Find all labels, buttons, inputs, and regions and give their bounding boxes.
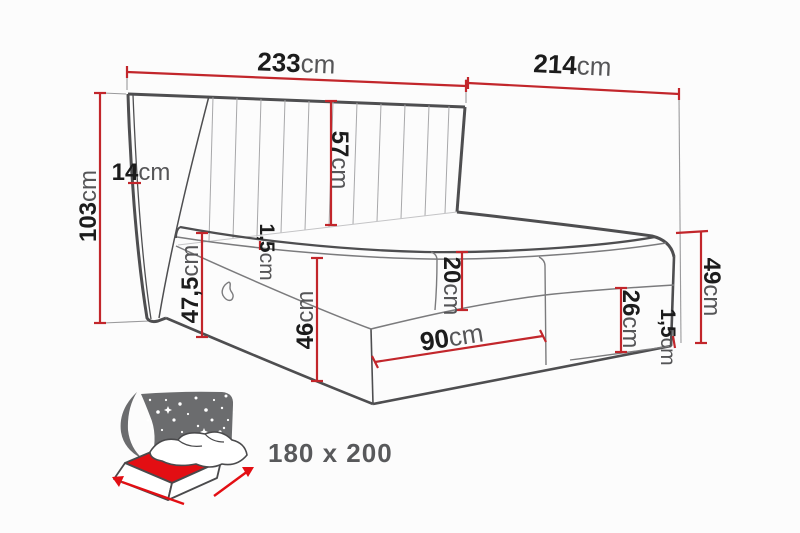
dim-side-panel-height: 26cm <box>618 290 645 349</box>
dim-top-piping: 1,5cm <box>256 223 279 280</box>
dim-base-height: 46cm <box>292 291 319 350</box>
dim-drawer-width: 90cm <box>418 317 485 356</box>
moon-icon <box>121 392 143 459</box>
diagram-canvas: 233cm 214cm 103cm 14cm 57cm 47,5cm 1,5cm… <box>0 0 800 533</box>
dim-total-length: 214cm <box>533 48 612 82</box>
bed-size-badge: 180 x 200 <box>112 392 393 504</box>
dim-headboard-width: 233cm <box>257 46 336 79</box>
size-label: 180 x 200 <box>268 438 393 468</box>
bed-base-outline <box>166 212 674 404</box>
mattress-back-edge <box>178 212 457 245</box>
dim-mattress-thickness: 20cm <box>439 257 466 316</box>
dim-foot-end-height: 49cm <box>699 258 726 317</box>
dim-headboard-depth: 14cm <box>112 159 171 186</box>
drawer-handle <box>222 282 233 300</box>
dim-headboard-above-mattress: 57cm <box>327 131 354 190</box>
bed-dimension-diagram: 233cm 214cm 103cm 14cm 57cm 47,5cm 1,5cm… <box>0 0 800 533</box>
dim-headboard-height: 103cm <box>75 170 102 242</box>
dim-bottom-piping: 1,5cm <box>657 308 680 365</box>
dimension-lines <box>94 66 708 381</box>
dim-height-to-mattress-top: 47,5cm <box>177 245 204 324</box>
